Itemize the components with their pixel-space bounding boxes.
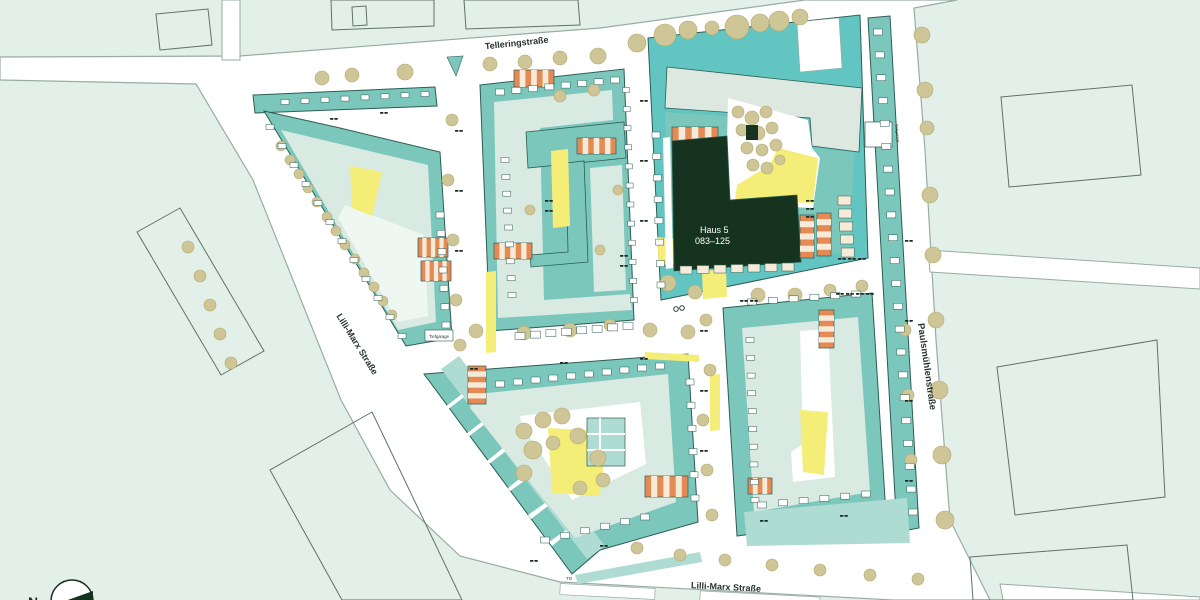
svg-text:Tiefgarage: Tiefgarage [429, 334, 450, 339]
svg-text:083–125: 083–125 [695, 236, 730, 246]
svg-text:Haus 5: Haus 5 [700, 225, 729, 235]
svg-text:TG: TG [566, 576, 573, 581]
svg-text:N: N [28, 594, 38, 600]
